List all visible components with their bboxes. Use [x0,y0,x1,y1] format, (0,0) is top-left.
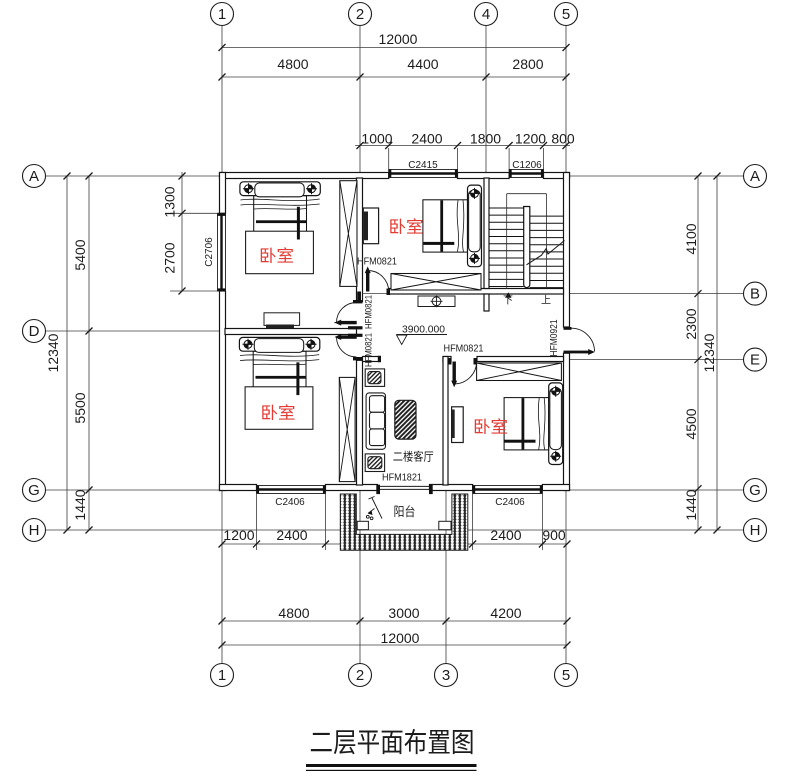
svg-text:12340: 12340 [45,333,61,372]
svg-text:B: B [750,286,760,303]
svg-text:C2415: C2415 [408,160,438,171]
svg-text:3000: 3000 [388,605,419,621]
svg-text:2800: 2800 [512,56,543,72]
svg-text:2: 2 [356,667,364,684]
svg-text:5400: 5400 [72,239,88,270]
svg-text:二楼客厅: 二楼客厅 [393,450,434,464]
svg-text:1440: 1440 [683,489,699,520]
svg-text:12000: 12000 [381,630,420,646]
svg-text:C2706: C2706 [204,237,215,267]
svg-text:3900.000: 3900.000 [402,324,445,336]
svg-text:上: 上 [541,295,551,307]
svg-text:1: 1 [218,6,226,23]
svg-text:2: 2 [356,6,364,23]
svg-text:阳台: 阳台 [394,504,416,519]
svg-text:1200: 1200 [515,131,546,147]
svg-text:D: D [29,323,40,340]
svg-text:卧室: 卧室 [389,218,424,237]
svg-text:卧室: 卧室 [261,404,296,423]
svg-text:G: G [28,482,40,499]
svg-text:4100: 4100 [683,223,699,254]
svg-text:C2406: C2406 [495,497,525,508]
svg-text:4800: 4800 [277,56,308,72]
svg-text:1200: 1200 [223,527,254,543]
svg-text:1440: 1440 [72,489,88,520]
svg-text:1300: 1300 [162,186,178,217]
svg-text:HFM0821: HFM0821 [364,333,375,367]
svg-text:4500: 4500 [683,408,699,439]
svg-text:G: G [749,482,761,499]
svg-text:卧室: 卧室 [259,247,294,266]
svg-text:2400: 2400 [276,527,307,543]
svg-text:5: 5 [562,667,570,684]
svg-text:2400: 2400 [490,527,521,543]
svg-text:5500: 5500 [72,392,88,423]
svg-text:A: A [29,168,39,185]
svg-text:HFM0821: HFM0821 [364,295,375,329]
svg-text:1800: 1800 [470,131,501,147]
svg-text:12340: 12340 [701,333,717,372]
svg-text:2700: 2700 [162,242,178,273]
svg-text:HFM0821: HFM0821 [444,344,484,355]
svg-text:卧室: 卧室 [473,418,508,437]
svg-text:A: A [750,168,760,185]
svg-text:下: 下 [503,296,513,307]
svg-text:H: H [29,522,40,539]
svg-text:4400: 4400 [407,56,438,72]
svg-text:4: 4 [482,6,490,23]
svg-text:900: 900 [542,527,566,543]
svg-text:HFM0921: HFM0921 [549,319,560,356]
svg-text:HFM1821: HFM1821 [382,473,422,484]
svg-text:C2406: C2406 [275,497,305,508]
svg-text:4200: 4200 [490,605,521,621]
svg-text:4800: 4800 [278,605,309,621]
svg-text:H: H [750,522,761,539]
svg-text:1000: 1000 [361,131,392,147]
svg-text:二层平面布置图: 二层平面布置图 [310,728,475,758]
svg-text:E: E [750,352,760,369]
svg-text:C1206: C1206 [512,160,542,171]
svg-text:5: 5 [562,6,570,23]
svg-text:3: 3 [442,667,450,684]
svg-text:HFM0821: HFM0821 [357,257,397,268]
svg-text:2300: 2300 [683,308,699,339]
svg-text:2400: 2400 [411,131,442,147]
svg-text:1: 1 [218,667,226,684]
svg-text:12000: 12000 [379,31,418,47]
svg-text:800: 800 [551,131,575,147]
